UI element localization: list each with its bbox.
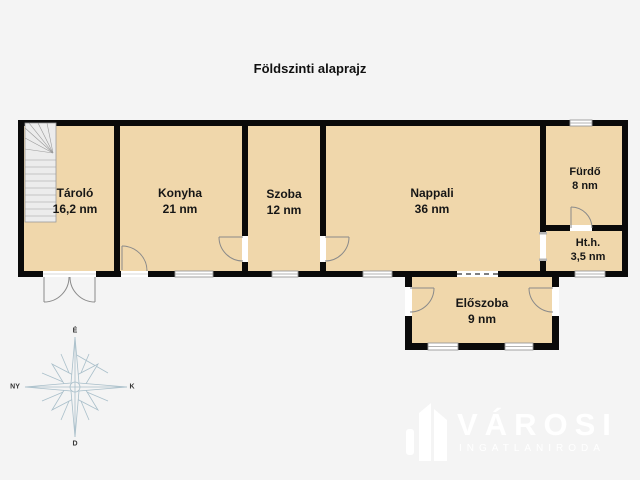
room-label-nappali: Nappali 36 nm — [410, 185, 453, 217]
compass-rose-icon — [25, 337, 127, 437]
room-label-tarolo: Tároló 16,2 nm — [53, 185, 98, 217]
compass-east-label: K — [129, 384, 134, 391]
staircase-icon — [25, 123, 56, 222]
compass-west-label: NY — [10, 384, 20, 391]
compass-north-label: É — [73, 328, 78, 335]
room-label-szoba: Szoba 12 nm — [266, 186, 301, 218]
logo-building-icon — [406, 403, 447, 461]
compass-south-label: D — [72, 441, 77, 448]
room-label-hth: Ht.h. 3,5 nm — [571, 236, 606, 264]
room-label-konyha: Konyha 21 nm — [158, 185, 202, 217]
floor-plan-page: Földszinti alaprajz — [0, 0, 640, 480]
watermark-subtitle: INGATLANIRODA — [459, 443, 605, 454]
room-label-furdo: Fürdő 8 nm — [569, 165, 600, 193]
watermark-brand: VÁROSI — [457, 407, 618, 443]
room-label-eloszoba: Előszoba 9 nm — [456, 295, 509, 327]
